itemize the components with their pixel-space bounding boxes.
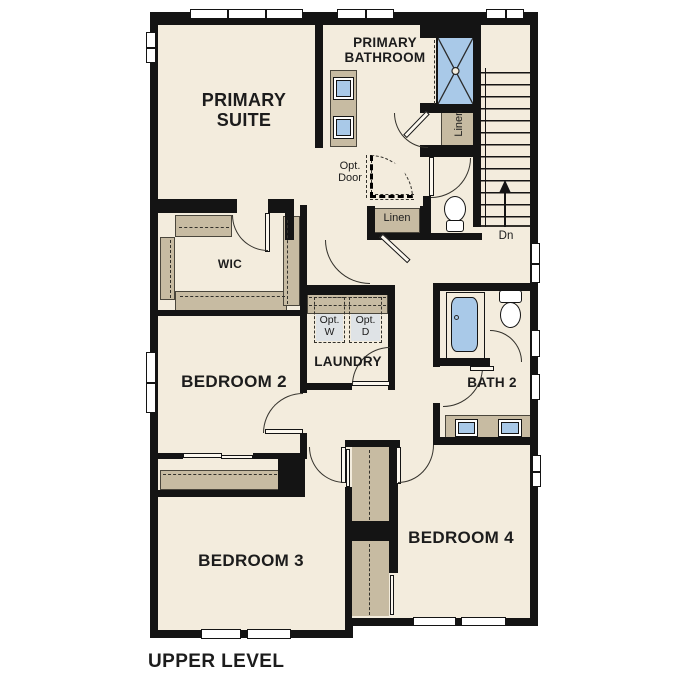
wic-rod-bottom: [180, 296, 285, 297]
bedroom2-closet-slider-a: [183, 453, 222, 458]
bath2-vanity-sink-a: [455, 419, 478, 437]
bedroom2-closet-slider-b: [221, 455, 253, 459]
window-bedroom3-bottom-b: [247, 629, 291, 639]
stair-direction-line: [504, 188, 506, 227]
window-mullion: [147, 382, 155, 384]
annotation-line: W: [325, 326, 335, 338]
bath2-wetroom-door-leaf: [470, 366, 494, 371]
toilet-water-closet-base: [446, 220, 464, 232]
wall-wc-left: [423, 196, 431, 233]
room-label-bath2: BATH 2: [458, 375, 526, 390]
window-bedroom4-bottom-b: [461, 617, 506, 626]
wall-bath2-top: [433, 283, 538, 291]
annotation-linen-bath: Linen: [453, 91, 465, 155]
room-label-line: PRIMARY: [202, 90, 286, 110]
central-closet-upper-shelf: [352, 447, 389, 521]
annotation-line: Opt.: [340, 160, 361, 172]
wall-bedroom2-bottom-a: [158, 453, 183, 459]
room-label-line: SUITE: [217, 110, 272, 130]
annotation-line: Opt.: [356, 314, 376, 326]
room-label-bedroom3: BEDROOM 3: [191, 551, 311, 570]
window-stairwell-top: [486, 9, 524, 19]
window-primary-suite-left: [146, 32, 156, 63]
room-label-primary-suite: PRIMARY SUITE: [164, 90, 324, 130]
window-bath2-right-b: [531, 374, 540, 400]
wic-shelf-left: [160, 237, 175, 300]
annotation-linen-hall: Linen: [374, 212, 420, 224]
annotation-opt-dryer: Opt. D: [349, 315, 382, 339]
room-label-bedroom2: BEDROOM 2: [174, 372, 294, 391]
wall-bath2-wetroom-bottom: [440, 358, 490, 366]
page-title: UPPER LEVEL: [148, 651, 388, 672]
window-bedroom3-bottom-a: [201, 629, 241, 639]
annotation-line: D: [362, 326, 370, 338]
room-label-laundry: LAUNDRY: [308, 354, 388, 369]
annotation-line: Opt.: [320, 314, 340, 326]
central-closet-rod-upper: [369, 450, 370, 520]
wic-shelf-top: [175, 215, 232, 237]
central-closet-lower-door-panel: [390, 575, 394, 615]
wall-central-closet-left-lower: [345, 541, 352, 618]
wall-exterior-right: [530, 12, 538, 626]
annotation-opt-door: Opt. Door: [324, 160, 376, 185]
wall-exterior-left: [150, 12, 158, 638]
room-label-bedroom4: BEDROOM 4: [401, 528, 521, 547]
wall-bath2-left-upper: [433, 283, 440, 367]
wall-bedroom2-hall-upper: [300, 205, 307, 393]
room-label-line: BATHROOM: [345, 50, 426, 65]
annotation-opt-washer: Opt. W: [314, 315, 345, 339]
window-mullion: [265, 10, 267, 18]
wall-laundry-top: [300, 285, 395, 295]
central-closet-upper-door-panel: [346, 449, 350, 487]
wic-rod-right: [287, 220, 288, 304]
window-primary-bathroom-top: [337, 9, 394, 19]
central-closet-rod-lower: [369, 544, 370, 615]
stair-direction-arrow-icon: [499, 180, 511, 193]
window-mullion: [532, 263, 539, 265]
bathtub-basin: [451, 297, 478, 352]
primary-vanity-sink-a: [333, 77, 354, 100]
annotation-stairs-down: Dn: [488, 230, 524, 243]
window-mullion: [147, 47, 155, 49]
room-label-primary-bathroom: PRIMARY BATHROOM: [325, 35, 445, 65]
window-mullion: [365, 10, 367, 18]
bathtub-drain-icon: [454, 315, 459, 320]
window-mullion: [227, 10, 229, 18]
bedroom2-closet-shelf: [160, 470, 280, 490]
wall-suite-bottom-a: [155, 199, 237, 213]
room-label-wic: WIC: [201, 258, 259, 271]
floorplan-upper-level: PRIMARY SUITE PRIMARY BATHROOM WIC BEDRO…: [0, 0, 687, 687]
primary-vanity-sink-b: [333, 116, 354, 139]
window-bedroom4-right: [532, 455, 541, 487]
window-bath2-right-a: [531, 330, 540, 357]
toilet-water-closet-bowl: [444, 196, 466, 222]
wic-rod-top: [179, 227, 229, 228]
window-mullion: [533, 471, 540, 473]
wall-bath2-left-lower: [433, 403, 440, 445]
bedroom2-closet-rod: [163, 474, 277, 475]
wall-central-closet-divider: [345, 521, 398, 541]
wall-linen-bath-bottom: [420, 145, 478, 157]
window-primary-suite-top: [190, 9, 303, 19]
wall-laundry-bottom: [305, 383, 352, 390]
wic-rod-left: [170, 240, 171, 298]
window-bedroom2-left: [146, 352, 156, 413]
toilet-bath2-bowl: [500, 302, 521, 328]
annotation-line: Door: [338, 172, 362, 184]
room-label-line: PRIMARY: [353, 35, 417, 50]
wall-central-closet-right-lower: [389, 541, 398, 573]
window-landing-right: [531, 243, 540, 283]
wall-bedroom4-top: [440, 437, 538, 445]
window-mullion: [505, 10, 507, 18]
wall-bedroom2-closet-right: [278, 453, 305, 497]
bathtub: [446, 292, 485, 359]
bath2-vanity-sink-b: [498, 419, 522, 437]
window-bedroom4-bottom-a: [413, 617, 456, 626]
wall-wic-bottom: [158, 310, 307, 316]
central-closet-lower-shelf: [352, 541, 389, 616]
